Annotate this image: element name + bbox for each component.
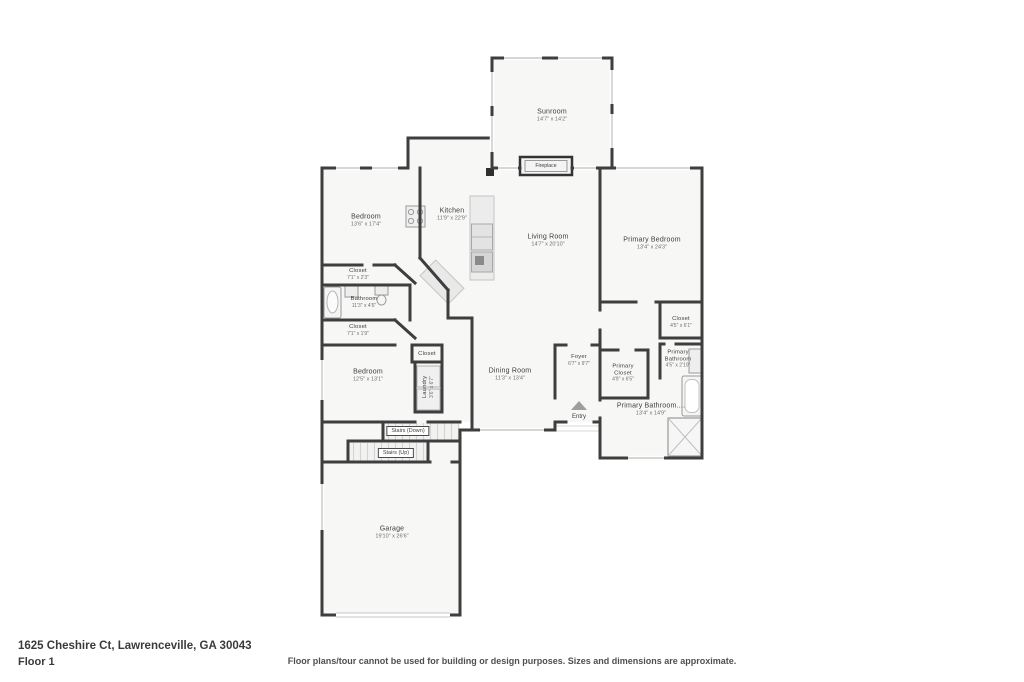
room-label-laundry: Laundry 3'6" x 6'7"	[422, 376, 435, 398]
room-label-bedroom-1: Bedroom 13'6" x 17'4"	[351, 214, 381, 229]
room-label-dining-room: Dining Room 11'3" x 13'4"	[489, 368, 532, 383]
room-label-closet-hall: Closet	[418, 351, 436, 358]
room-label-sunroom: Sunroom 14'7" x 14'2"	[537, 109, 567, 124]
address-text: 1625 Cheshire Ct, Lawrenceville, GA 3004…	[18, 640, 252, 652]
entry-label: Entry	[572, 414, 586, 420]
room-label-primary-bedroom: Primary Bedroom 13'4" x 24'3"	[623, 237, 680, 252]
room-label-garage: Garage 19'10" x 26'6"	[375, 526, 408, 541]
shower-icon	[668, 418, 702, 456]
bathtub-icon	[324, 287, 341, 318]
room-label-primary-closet: Primary Closet 4'9" x 6'5"	[603, 364, 643, 383]
room-label-primary-bathroom: Primary Bathroom.... 13'4" x 14'9"	[617, 403, 685, 418]
floorplan-drawing	[0, 0, 1024, 682]
room-label-kitchen: Kitchen 11'9" x 22'9"	[437, 208, 467, 223]
room-label-closet-right: Closet 4'5" x 6'1"	[670, 316, 692, 329]
room-label-living-room: Living Room 14'7" x 20'10"	[527, 234, 568, 249]
stairs-down-label: Stairs (Down)	[386, 426, 429, 436]
room-label-closet-1: Closet 7'1" x 2'3"	[347, 268, 369, 281]
room-label-bathroom: Bathroom 11'3" x 4'6"	[351, 296, 378, 309]
room-label-primary-bathroom-small: Primary Bathroom 4'5" x 2'10"	[658, 350, 698, 369]
fireplace-label: Fireplace	[535, 163, 556, 169]
room-label-bedroom-2: Bedroom 12'5" x 13'1"	[353, 369, 383, 384]
stairs-up-label: Stairs (Up)	[378, 448, 414, 458]
entry-steps	[556, 426, 600, 431]
room-label-foyer: Foyer 6'7" x 9'7"	[568, 354, 590, 367]
room-label-closet-2: Closet 7'1" x 1'9"	[347, 324, 369, 337]
kitchen-island	[470, 196, 494, 280]
disclaimer-text: Floor plans/tour cannot be used for buil…	[0, 656, 1024, 666]
stove-icon	[406, 206, 425, 227]
floorplan-page: Sunroom 14'7" x 14'2" Bedroom 13'6" x 17…	[0, 0, 1024, 682]
